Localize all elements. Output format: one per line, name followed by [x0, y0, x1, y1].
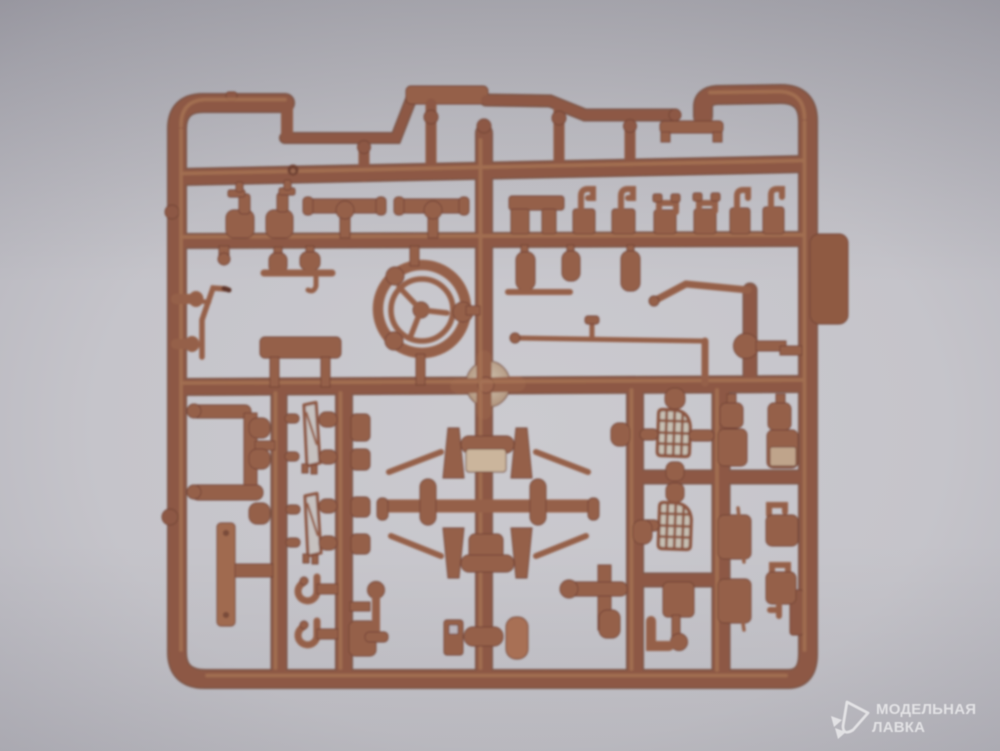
svg-text:ЛАВКА: ЛАВКА [872, 719, 925, 736]
svg-text:МОДЕЛЬНАЯ: МОДЕЛЬНАЯ [876, 701, 976, 718]
